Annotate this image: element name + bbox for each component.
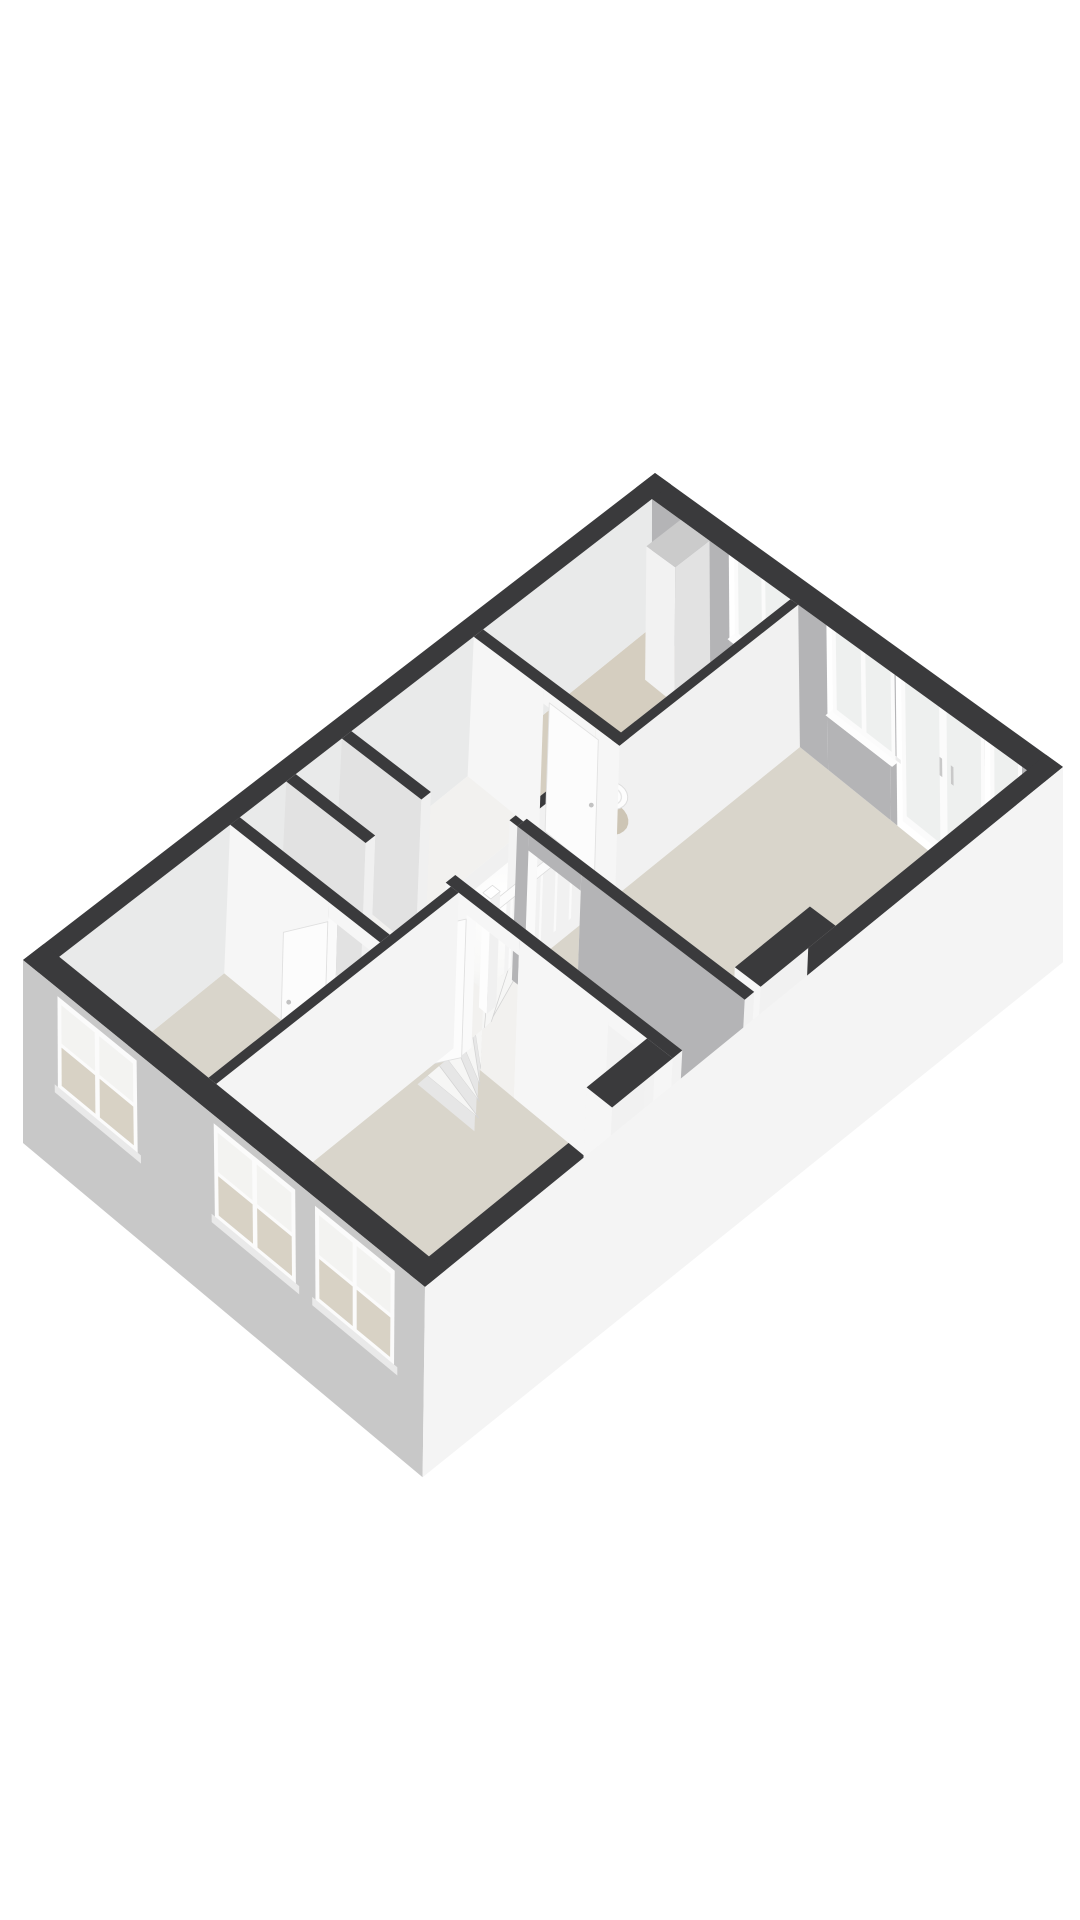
french-doors	[905, 680, 940, 843]
duct	[645, 546, 675, 703]
door-handle	[940, 757, 943, 777]
floorplan-scene	[23, 473, 1063, 1477]
door-handle	[951, 765, 954, 786]
floorplan-3d	[0, 0, 1080, 1920]
door-handle	[286, 1000, 291, 1005]
door-handle	[589, 803, 594, 808]
floorplan-stage	[0, 0, 1080, 1920]
